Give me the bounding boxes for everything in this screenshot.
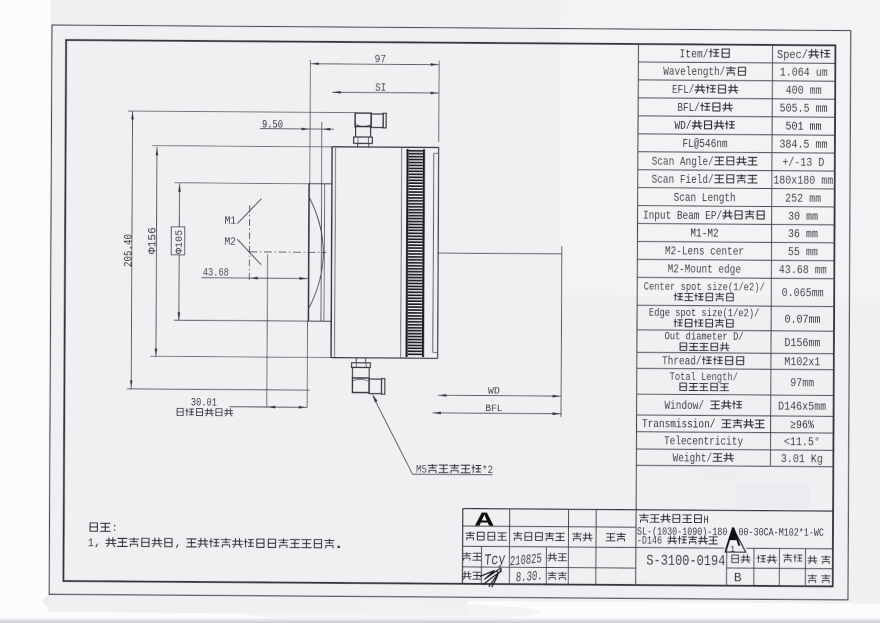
svg-text:M102x1: M102x1: [784, 355, 820, 369]
svg-text:<11.5°: <11.5°: [784, 435, 820, 449]
svg-text:Input Beam EP/: Input Beam EP/: [643, 208, 722, 223]
svg-text:210825: 210825: [509, 552, 542, 570]
svg-text:3.01 Kg: 3.01 Kg: [781, 452, 823, 466]
svg-text:Wavelength/: Wavelength/: [663, 65, 725, 79]
svg-text:9.50: 9.50: [262, 119, 283, 131]
svg-text:Scan Angle/: Scan Angle/: [652, 155, 714, 169]
svg-text:D146x5mm: D146x5mm: [778, 399, 826, 413]
svg-text:SI: SI: [375, 83, 386, 95]
svg-text:Φ156: Φ156: [147, 227, 159, 254]
svg-text:M2: M2: [224, 237, 235, 249]
svg-text:M2-Lens center: M2-Lens center: [665, 244, 744, 259]
svg-text:43.68: 43.68: [203, 268, 229, 280]
svg-text:-D146: -D146: [637, 536, 667, 548]
svg-text:8.30.: 8.30.: [515, 569, 543, 586]
svg-text:0.07mm: 0.07mm: [785, 312, 821, 326]
svg-text:1: 1: [730, 545, 735, 555]
svg-text:384.5 mm: 384.5 mm: [779, 138, 827, 152]
svg-text:+/-13 D: +/-13 D: [782, 156, 824, 170]
svg-text:Window/: Window/: [664, 399, 709, 413]
svg-text:Item/: Item/: [679, 47, 708, 61]
svg-text:≥96%: ≥96%: [790, 418, 815, 432]
svg-text:Tcy: Tcy: [484, 550, 507, 569]
svg-text:36 mm: 36 mm: [788, 227, 818, 241]
svg-text:Center spot size(1/e2)/: Center spot size(1/e2)/: [644, 282, 765, 295]
svg-text:Scan Field/: Scan Field/: [652, 173, 714, 187]
svg-text:1: 1: [88, 537, 94, 550]
svg-text:400 mm: 400 mm: [786, 84, 822, 98]
svg-text:S-3100-0194: S-3100-0194: [646, 554, 725, 571]
svg-text:D156mm: D156mm: [784, 336, 820, 350]
svg-text:97mm: 97mm: [790, 376, 814, 390]
svg-text:WD/: WD/: [674, 119, 691, 133]
svg-text:Thread/: Thread/: [662, 354, 702, 368]
svg-text:*2: *2: [482, 465, 493, 477]
svg-text:EFL/: EFL/: [672, 83, 695, 97]
svg-text:Edge spot size(1/e2)/: Edge spot size(1/e2)/: [649, 308, 760, 321]
svg-text:30.01: 30.01: [191, 397, 217, 409]
svg-text:BFL/: BFL/: [677, 101, 700, 115]
svg-text:Spec/: Spec/: [777, 48, 808, 62]
svg-text:Φ105: Φ105: [175, 230, 186, 254]
svg-text:A: A: [475, 509, 494, 531]
svg-text:Transmission/: Transmission/: [642, 417, 721, 432]
svg-text:1.064 um: 1.064 um: [780, 66, 828, 80]
svg-text:WD: WD: [488, 385, 500, 397]
svg-text:501 mm: 501 mm: [785, 120, 821, 134]
svg-text:205.40: 205.40: [123, 234, 135, 267]
svg-text:180x180 mm: 180x180 mm: [773, 173, 833, 187]
svg-text:Telecentricity: Telecentricity: [664, 434, 743, 449]
svg-text:M5: M5: [416, 465, 427, 477]
svg-text:H: H: [703, 515, 708, 527]
svg-text:B: B: [734, 570, 742, 585]
svg-text:Out diameter D/: Out diameter D/: [665, 331, 744, 344]
svg-text:M2-Mount edge: M2-Mount edge: [668, 262, 741, 277]
svg-text:43.68 mm: 43.68 mm: [779, 263, 827, 277]
svg-text:00-30CA-M102*1-WC: 00-30CA-M102*1-WC: [738, 527, 824, 540]
svg-text:Weight/: Weight/: [673, 451, 713, 465]
svg-text:FL@546nm: FL@546nm: [682, 137, 727, 151]
svg-text:0.065mm: 0.065mm: [782, 286, 824, 300]
svg-text:M1-M2: M1-M2: [690, 227, 718, 241]
svg-text:M1: M1: [225, 216, 237, 228]
svg-text:97: 97: [375, 54, 387, 66]
svg-text:Total Length/: Total Length/: [670, 372, 739, 384]
svg-text:505.5 mm: 505.5 mm: [780, 102, 828, 116]
svg-text:Scan Length: Scan Length: [674, 191, 736, 205]
svg-text:30 mm: 30 mm: [788, 209, 818, 223]
svg-text:55 mm: 55 mm: [788, 245, 818, 259]
svg-text:252 mm: 252 mm: [785, 191, 821, 205]
svg-text:BFL: BFL: [485, 403, 502, 415]
